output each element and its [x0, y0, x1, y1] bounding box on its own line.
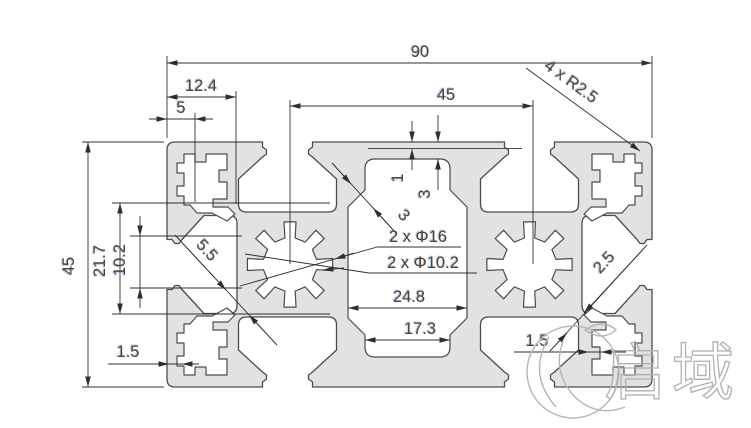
dim-wall-bottom-left-label: 1.5 [117, 343, 140, 361]
dim-top-offset-label: 12.4 [185, 77, 217, 95]
dim-bore-outer-label: 2 x Φ16 [389, 228, 447, 246]
dim-top-wall-label: 3 [416, 189, 434, 198]
dim-corner-radius: 4 x R2.5 [526, 57, 640, 151]
dim-corner-radius-label: 4 x R2.5 [541, 57, 601, 108]
dim-left-web-label: 5.5 [192, 236, 221, 265]
dim-bore-spacing-label: 45 [437, 86, 455, 104]
dim-screw-slot-label: 5 [176, 99, 185, 117]
dim-overall-height-label: 45 [60, 257, 78, 275]
dim-side-slot-label: 10.2 [111, 244, 129, 276]
drawing-canvas: 90 12.4 5 45 4 x R2.5 1 3 [0, 0, 751, 428]
dim-side-cavity-label: 21.7 [91, 245, 109, 277]
dim-cavity-width-label: 24.8 [393, 288, 425, 306]
watermark-brand-text: 启域 [604, 336, 740, 409]
dim-face-recess-label: 1 [389, 173, 407, 182]
dim-right-web-label: 2.5 [590, 248, 619, 277]
gear-bore-right [487, 222, 572, 307]
dim-bore-inner-label: 2 x Φ10.2 [387, 254, 459, 272]
dim-overall-width-label: 90 [411, 43, 429, 61]
dim-cavity-opening-label: 17.3 [404, 320, 436, 338]
